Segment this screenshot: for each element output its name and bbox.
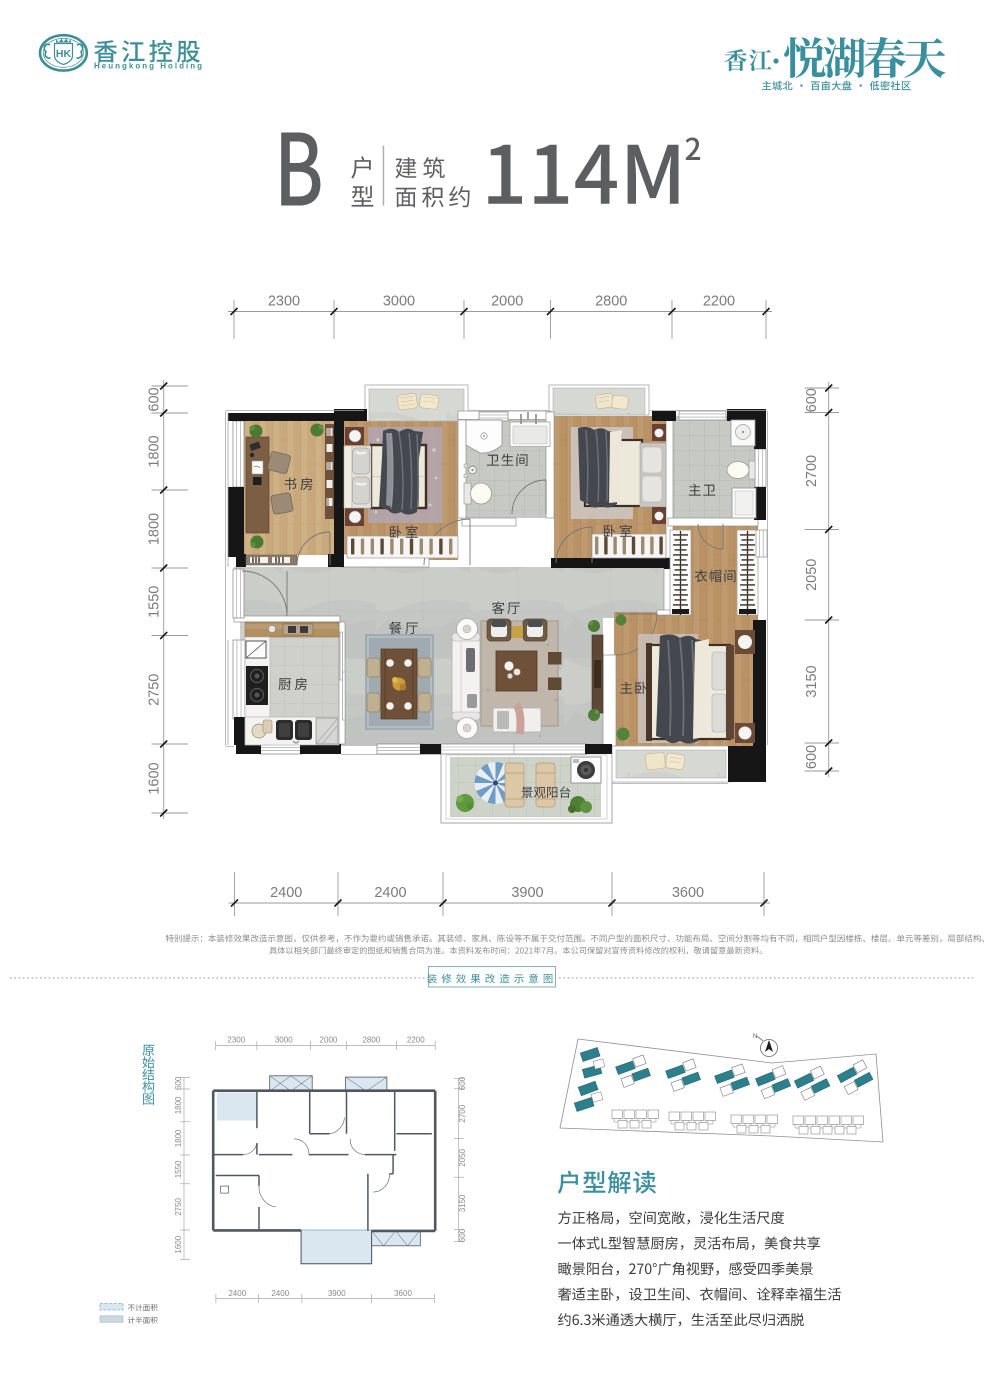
svg-text:3900: 3900 bbox=[328, 1289, 346, 1298]
svg-text:600: 600 bbox=[147, 387, 163, 411]
svg-text:2050: 2050 bbox=[458, 1148, 467, 1166]
svg-text:2200: 2200 bbox=[703, 294, 735, 310]
svg-text:1550: 1550 bbox=[174, 1160, 183, 1178]
svg-text:1800: 1800 bbox=[147, 513, 163, 545]
svg-text:600: 600 bbox=[458, 1076, 467, 1090]
svg-text:2750: 2750 bbox=[174, 1197, 183, 1215]
svg-text:3150: 3150 bbox=[804, 665, 820, 697]
svg-text:1600: 1600 bbox=[174, 1235, 183, 1253]
svg-text:1800: 1800 bbox=[147, 435, 163, 467]
svg-text:2050: 2050 bbox=[804, 559, 820, 591]
svg-text:Heungkong Holding: Heungkong Holding bbox=[94, 62, 204, 71]
svg-text:N: N bbox=[753, 1034, 757, 1040]
svg-text:3000: 3000 bbox=[275, 1036, 293, 1045]
svg-text:3900: 3900 bbox=[511, 885, 543, 901]
svg-text:600: 600 bbox=[458, 1228, 467, 1242]
svg-text:2400: 2400 bbox=[270, 885, 302, 901]
svg-text:600: 600 bbox=[174, 1076, 183, 1090]
svg-text:3000: 3000 bbox=[383, 294, 415, 310]
svg-text:2000: 2000 bbox=[320, 1036, 338, 1045]
svg-text:3600: 3600 bbox=[672, 885, 704, 901]
svg-text:2200: 2200 bbox=[407, 1036, 425, 1045]
svg-text:2400: 2400 bbox=[374, 885, 406, 901]
svg-text:3150: 3150 bbox=[458, 1194, 467, 1212]
svg-text:2700: 2700 bbox=[804, 455, 820, 487]
svg-text:600: 600 bbox=[804, 745, 820, 769]
svg-text:HK: HK bbox=[56, 48, 72, 60]
svg-text:1550: 1550 bbox=[147, 586, 163, 618]
svg-text:2400: 2400 bbox=[228, 1289, 246, 1298]
svg-text:2300: 2300 bbox=[268, 294, 300, 310]
svg-text:2750: 2750 bbox=[147, 674, 163, 706]
svg-text:600: 600 bbox=[804, 388, 820, 412]
svg-text:3600: 3600 bbox=[394, 1289, 412, 1298]
svg-text:2000: 2000 bbox=[491, 294, 523, 310]
svg-text:2700: 2700 bbox=[458, 1104, 467, 1122]
svg-text:1800: 1800 bbox=[174, 1096, 183, 1114]
svg-text:2800: 2800 bbox=[595, 294, 627, 310]
svg-text:1600: 1600 bbox=[147, 762, 163, 794]
svg-text:2400: 2400 bbox=[271, 1289, 289, 1298]
svg-text:2800: 2800 bbox=[362, 1036, 380, 1045]
svg-text:1800: 1800 bbox=[174, 1129, 183, 1147]
svg-text:2300: 2300 bbox=[227, 1036, 245, 1045]
